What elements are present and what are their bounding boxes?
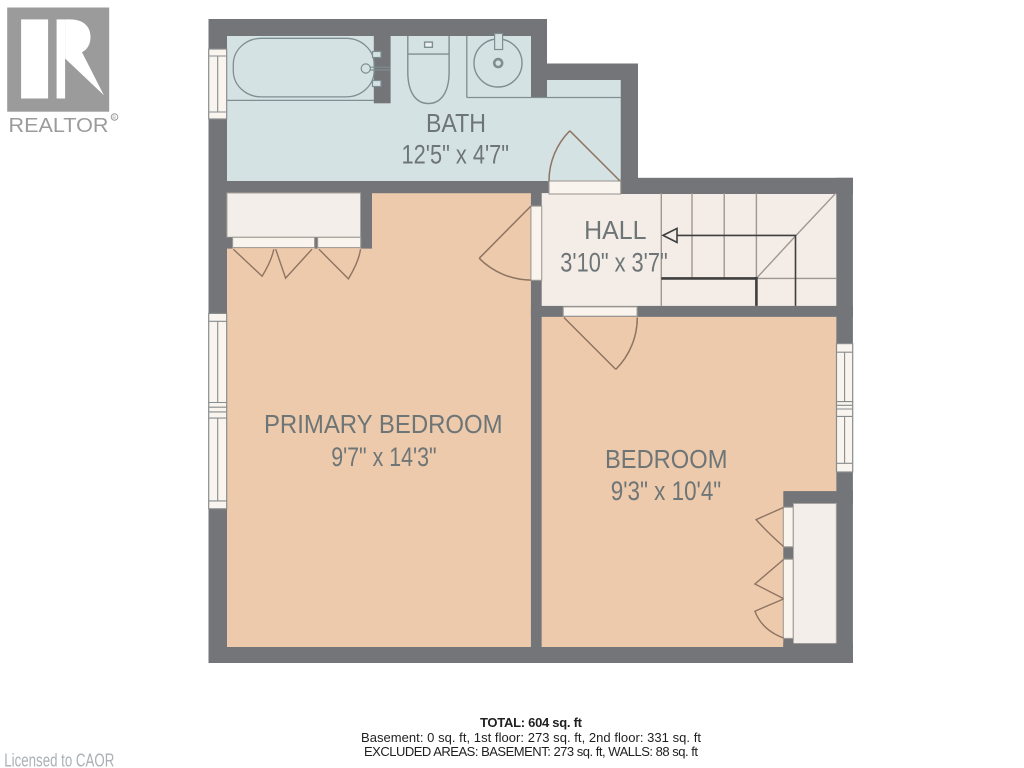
svg-text:9'3" x 10'4": 9'3" x 10'4": [611, 476, 722, 506]
svg-text:Basement: 0 sq. ft, 1st floor:: Basement: 0 sq. ft, 1st floor: 273 sq. f…: [361, 730, 701, 745]
svg-text:EXCLUDED AREAS: BASEMENT: 273: EXCLUDED AREAS: BASEMENT: 273 sq. ft, WA…: [364, 744, 698, 759]
svg-text:12'5" x 4'7": 12'5" x 4'7": [402, 140, 510, 170]
svg-text:Licensed to CAOR: Licensed to CAOR: [4, 750, 114, 768]
svg-text:3'10" x 3'7": 3'10" x 3'7": [560, 248, 667, 278]
svg-text:TOTAL: 604 sq. ft: TOTAL: 604 sq. ft: [480, 715, 583, 730]
svg-text:BEDROOM: BEDROOM: [605, 444, 728, 474]
svg-text:HALL: HALL: [584, 215, 646, 245]
svg-text:BATH: BATH: [426, 108, 486, 138]
svg-text:R: R: [112, 116, 116, 122]
svg-text:9'7" x 14'3": 9'7" x 14'3": [331, 442, 436, 472]
svg-text:REALTOR: REALTOR: [9, 114, 109, 137]
svg-text:PRIMARY BEDROOM: PRIMARY BEDROOM: [264, 409, 503, 439]
